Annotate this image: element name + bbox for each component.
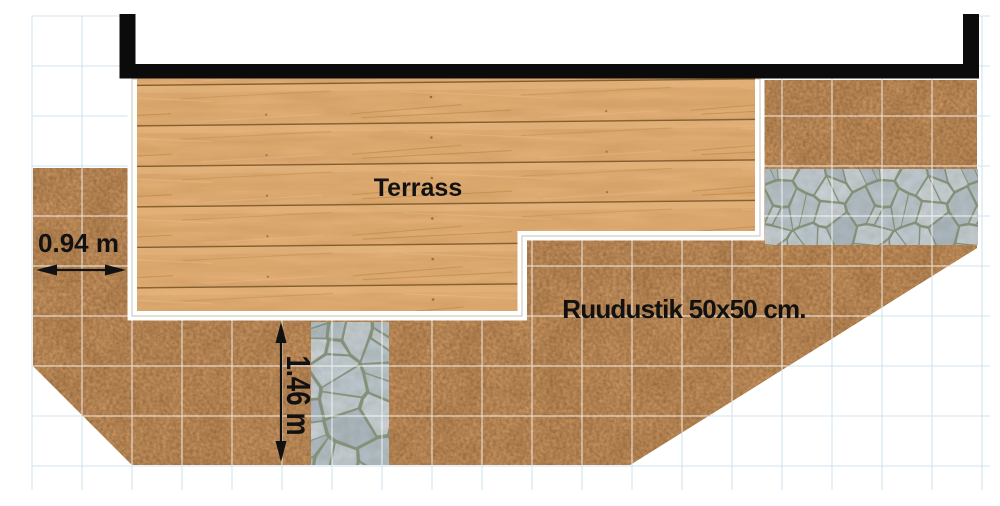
svg-text:Terrass: Terrass bbox=[374, 174, 463, 202]
svg-text:1.46 m: 1.46 m bbox=[279, 355, 316, 435]
svg-text:Ruudustik 50x50 cm.: Ruudustik 50x50 cm. bbox=[562, 294, 805, 324]
svg-text:0.94 m: 0.94 m bbox=[38, 228, 119, 258]
